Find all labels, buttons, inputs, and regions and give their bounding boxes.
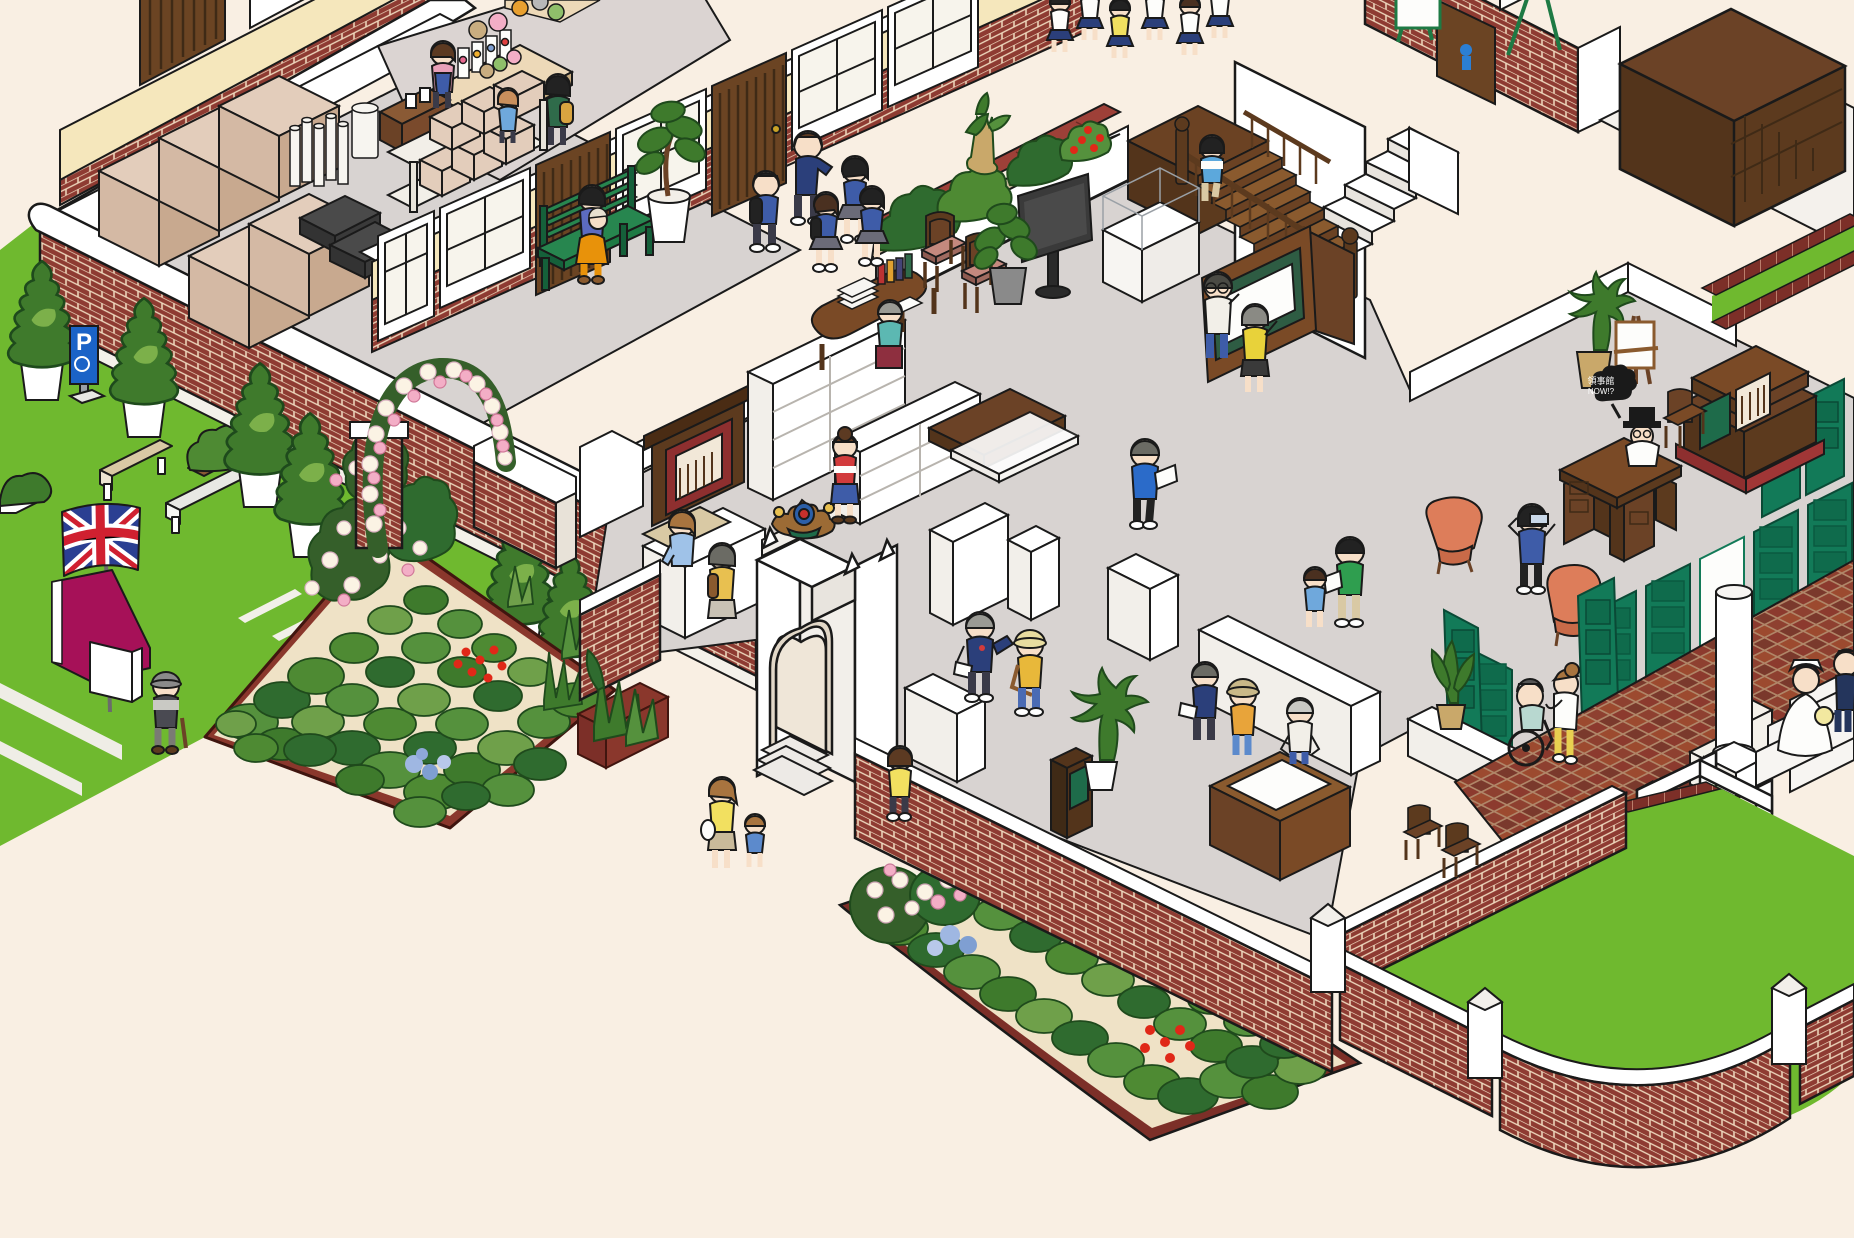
svg-text:領事館: 領事館	[1587, 375, 1614, 386]
svg-text:P: P	[76, 329, 92, 356]
svg-text:NOW!?: NOW!?	[1588, 387, 1615, 396]
